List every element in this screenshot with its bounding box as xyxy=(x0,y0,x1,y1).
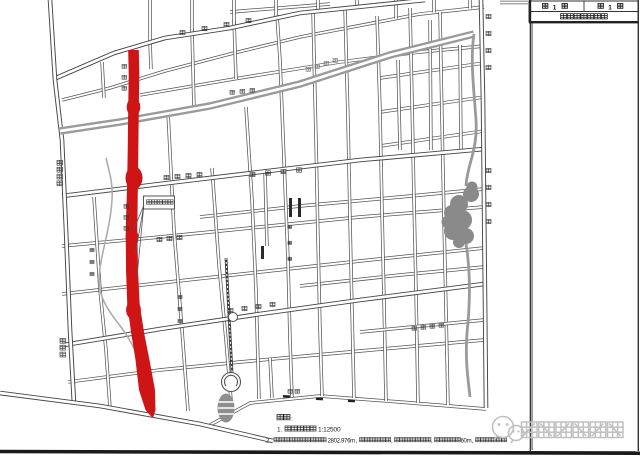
svg-text:1:12500: 1:12500 xyxy=(318,427,341,434)
svg-text:2802.976m: 2802.976m xyxy=(328,437,356,444)
svg-text:,: , xyxy=(472,437,474,444)
svg-text:1: 1 xyxy=(553,4,557,11)
svg-text:.: . xyxy=(281,427,283,434)
svg-text:,: , xyxy=(356,437,358,444)
svg-text::: : xyxy=(291,416,293,423)
svg-text:,: , xyxy=(431,437,433,444)
svg-text:60m: 60m xyxy=(461,437,472,444)
svg-text:.: . xyxy=(270,438,272,445)
svg-text:,: , xyxy=(391,437,393,444)
svg-text:1: 1 xyxy=(608,4,612,11)
